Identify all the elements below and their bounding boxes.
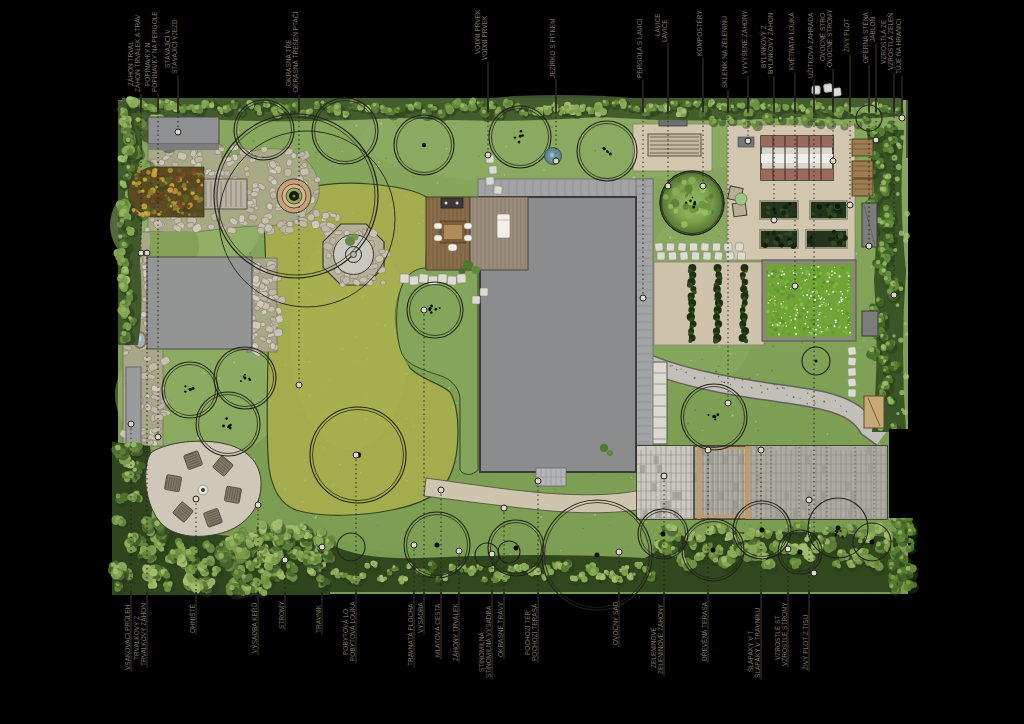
svg-text:DŘEVĚNÁ TERASA: DŘEVĚNÁ TERASA [700, 601, 708, 661]
svg-text:VODNÍ PRVEK: VODNÍ PRVEK [480, 15, 488, 60]
svg-text:OVOCNÉ STRO: OVOCNÉ STRO [818, 13, 826, 61]
svg-text:PERGOLA S LAVICÍ: PERGOLA S LAVICÍ [635, 19, 643, 78]
svg-text:SKLENÍK NA ZELENINU: SKLENÍK NA ZELENINU [720, 16, 728, 88]
svg-text:ZELENINOVÉ ZÁHONY: ZELENINOVÉ ZÁHONY [656, 603, 664, 674]
svg-text:TRVALKOVÝ ZÁHON: TRVALKOVÝ ZÁHON [139, 603, 147, 666]
svg-text:POBYTOVÁ LOUKA: POBYTOVÁ LOUKA [348, 601, 356, 661]
svg-text:STÁVAJÍCÍ VJEZD: STÁVAJÍCÍ VJEZD [170, 19, 178, 74]
svg-text:ZÁHON TRVALEK A TRAV: ZÁHON TRVALEK A TRAV [133, 14, 141, 92]
svg-text:JABLOŇ: JABLOŇ [868, 16, 876, 42]
svg-text:VZROSTLÉ STROMY: VZROSTLÉ STROMY [780, 601, 788, 666]
svg-text:JEZÍRKO S PÍTKEM: JEZÍRKO S PÍTKEM [548, 18, 556, 78]
svg-text:VYVÝŠENÉ ZÁHONY: VYVÝŠENÉ ZÁHONY [740, 9, 748, 74]
svg-text:OKRASNÁ TŘEŠEŇ PTAČÍ: OKRASNÁ TŘEŠEŇ PTAČÍ [291, 12, 299, 92]
svg-text:VZROSTLÉ ST: VZROSTLÉ ST [773, 616, 781, 660]
svg-text:STROMY: STROMY [278, 601, 285, 629]
svg-text:VSAKOVACÍ PRŮLEH: VSAKOVACÍ PRŮLEH [123, 604, 131, 670]
svg-text:POPÍNAVKY N: POPÍNAVKY N [143, 42, 151, 86]
svg-text:TRVALKOVÝ Z: TRVALKOVÝ Z [132, 616, 140, 660]
svg-text:OKRASNÉ TRÁVY: OKRASNÉ TRÁVY [496, 601, 504, 657]
svg-text:VÝSADBA KEŘŮ: VÝSADBA KEŘŮ [250, 602, 258, 653]
svg-text:STÍNOMILNÁ VÝSADBA: STÍNOMILNÁ VÝSADBA [484, 605, 492, 678]
svg-text:LAVICE: LAVICE [661, 19, 668, 42]
svg-text:OHNIŠTĚ: OHNIŠTĚ [188, 603, 196, 633]
svg-text:STÁVAJÍCÍ V: STÁVAJÍCÍ V [163, 29, 171, 68]
svg-text:OVOCNÉ STROMY: OVOCNÉ STROMY [825, 9, 833, 67]
svg-text:KOMPOSTÉRY: KOMPOSTÉRY [695, 10, 703, 56]
svg-text:VZROSTLÁ ZELEŇ: VZROSTLÁ ZELEŇ [886, 13, 894, 70]
svg-text:ŽIVÝ PLOT: ŽIVÝ PLOT [842, 19, 850, 52]
svg-text:ZÁHON TRVAL: ZÁHON TRVAL [126, 41, 134, 86]
svg-text:BYLINKOVÝ ZÁHON: BYLINKOVÝ ZÁHON [766, 12, 774, 74]
svg-text:POBYTOVÁ LO: POBYTOVÁ LO [341, 609, 349, 655]
svg-text:ZELENINOVÉ: ZELENINOVÉ [649, 626, 657, 668]
svg-text:TRÁVNÍK: TRÁVNÍK [314, 604, 322, 633]
svg-text:STÍNOMILNÁ: STÍNOMILNÁ [477, 632, 485, 672]
svg-text:MLATOVÁ CESTA: MLATOVÁ CESTA [433, 603, 441, 657]
svg-text:BYLINKOVÝ Z: BYLINKOVÝ Z [759, 25, 767, 68]
svg-text:TÚJE NA HRANICI: TÚJE NA HRANICI [894, 19, 902, 74]
svg-text:KVĚTNATÁ LOUKA: KVĚTNATÁ LOUKA [787, 12, 795, 70]
svg-text:ŠLAPÁKY V TRÁVNÍKU: ŠLAPÁKY V TRÁVNÍKU [753, 607, 761, 678]
svg-text:LAVICE: LAVICE [654, 13, 661, 36]
svg-text:POPÍNAVKY NA PERGOLE: POPÍNAVKY NA PERGOLE [150, 11, 158, 92]
svg-text:ŽIVÝ PLOT Z TISU: ŽIVÝ PLOT Z TISU [801, 614, 809, 670]
svg-text:POCHOZÍ TER: POCHOZÍ TER [523, 610, 531, 655]
svg-text:VODNÍ PRVEK: VODNÍ PRVEK [473, 9, 481, 54]
svg-text:VZROSTLÁ ZE: VZROSTLÁ ZE [879, 19, 887, 64]
svg-text:VÝSADBA: VÝSADBA [416, 602, 424, 633]
svg-text:OVOCNÝ SAD: OVOCNÝ SAD [611, 601, 619, 645]
svg-text:OKRASNÁ TŘE: OKRASNÁ TŘE [284, 39, 292, 86]
svg-text:UŽITKOVÁ ZAHRADA: UŽITKOVÁ ZAHRADA [806, 12, 814, 78]
svg-text:TRAVNATÁ PLOCHA: TRAVNATÁ PLOCHA [406, 603, 414, 666]
svg-text:ŠLAPÁKY V T: ŠLAPÁKY V T [746, 631, 754, 672]
svg-text:OPĚRNÁ STĚNA: OPĚRNÁ STĚNA [861, 11, 869, 63]
svg-text:POCHOZÍ TERASA: POCHOZÍ TERASA [530, 603, 538, 661]
svg-text:ZÁHONY TRVALEK: ZÁHONY TRVALEK [451, 603, 459, 661]
